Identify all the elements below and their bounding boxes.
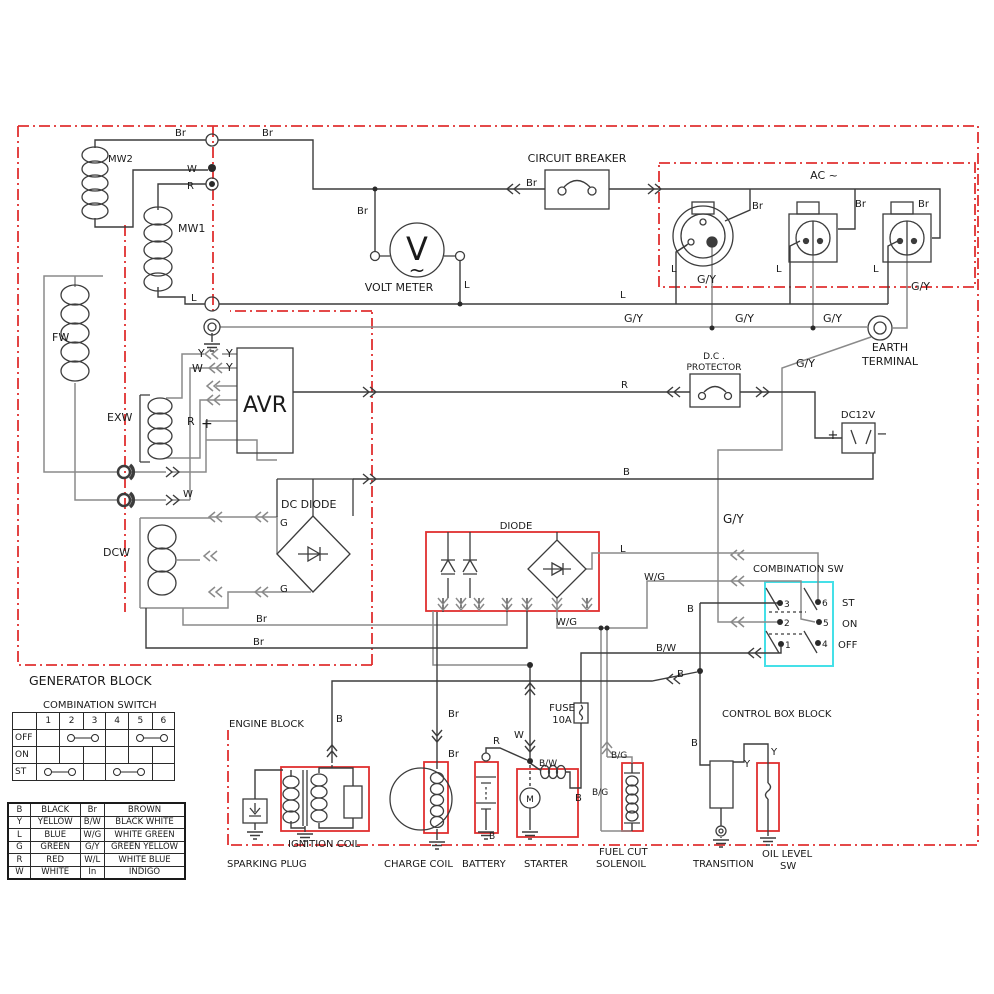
label-charge-coil: CHARGE COIL — [384, 859, 453, 870]
label-r: R — [621, 380, 628, 391]
label-b: B — [677, 669, 684, 680]
label-transition: TRANSITION — [692, 859, 754, 870]
label-combination-sw: COMBINATION SW — [753, 564, 844, 575]
label-l: L — [776, 264, 782, 275]
label-solenoil: SOLENOIL — [596, 859, 646, 870]
wire-color-legend: BBLACKBrBROWN YYELLOWB/WBLACK WHITE LBLU… — [7, 802, 186, 880]
label-b-w: B/W — [539, 759, 557, 769]
row-label-on: ON — [13, 747, 37, 764]
label-g: G — [280, 584, 288, 595]
label-g-y: G/Y — [911, 280, 930, 293]
label-10a: 10A — [552, 715, 572, 726]
junction-dots — [208, 164, 822, 764]
connector-gy-outer — [204, 319, 220, 335]
connector-br — [206, 134, 218, 146]
label-br: Br — [256, 614, 268, 625]
label-br: Br — [262, 128, 274, 139]
st-connection-4-5 — [106, 764, 153, 781]
label-r: R — [187, 181, 194, 192]
label-off: OFF — [838, 640, 858, 651]
label-b-g: B/G — [592, 788, 608, 798]
label-: ~ — [409, 258, 426, 282]
label-r: R — [493, 736, 500, 747]
label-ignition-coil: IGNITION COIL — [288, 839, 361, 850]
dc-protector — [690, 374, 740, 407]
label-br: Br — [855, 199, 867, 210]
ac-outlet-3 — [883, 202, 931, 262]
label-terminal: TERMINAL — [861, 355, 919, 368]
label-w: W — [192, 362, 203, 375]
label-b: B — [575, 793, 582, 804]
label-5: 5 — [823, 619, 829, 629]
label-b: B — [691, 738, 698, 749]
label-control-box-block: CONTROL BOX BLOCK — [722, 709, 832, 720]
label-br: Br — [448, 709, 460, 720]
label-l: L — [873, 264, 879, 275]
label-br: Br — [448, 749, 460, 760]
label-dc-diode: DC DIODE — [281, 498, 336, 511]
table-row-st: ST — [13, 764, 175, 781]
label-dcw: DCW — [103, 546, 130, 559]
col-blank — [13, 713, 37, 730]
off-connection-5-6 — [129, 730, 175, 747]
label-oil-level: OIL LEVEL — [762, 849, 813, 860]
ground-symbols — [204, 344, 776, 849]
label-l: L — [671, 264, 677, 275]
label-ac: AC ~ — [810, 169, 838, 182]
label-3: 3 — [784, 600, 790, 610]
label-d-c: D.C . — [703, 352, 725, 362]
exw-coil — [140, 395, 172, 462]
label-r: R — [187, 415, 195, 428]
label-b: B — [687, 604, 694, 615]
col-1: 1 — [37, 713, 60, 730]
col-6: 6 — [152, 713, 174, 730]
label-diode: DIODE — [500, 521, 533, 532]
label-w-g: W/G — [556, 617, 577, 628]
label-4: 4 — [822, 640, 828, 650]
label-: − — [877, 427, 888, 442]
st-connection-1-2 — [37, 764, 84, 781]
charge-coil — [390, 768, 452, 830]
label-g-y: G/Y — [697, 273, 716, 286]
label-st: ST — [842, 598, 855, 609]
row-label-st: ST — [13, 764, 37, 781]
label-y: Y — [225, 347, 233, 360]
label-2: 2 — [784, 619, 790, 629]
label-br: Br — [175, 128, 187, 139]
mw1-coil — [144, 207, 172, 291]
label-battery: BATTERY — [462, 859, 507, 870]
label-sparking-plug: SPARKING PLUG — [227, 859, 307, 870]
label-: + — [201, 416, 213, 432]
table-header-row: 1 2 3 4 5 6 — [13, 713, 175, 730]
label-l: L — [620, 290, 626, 301]
label-b: B — [623, 467, 630, 478]
col-2: 2 — [60, 713, 84, 730]
combination-switch-table: 1 2 3 4 5 6 OFF ON ST — [12, 712, 175, 781]
label-br: Br — [357, 206, 369, 217]
label-on: ON — [842, 619, 857, 630]
label-l: L — [620, 544, 626, 555]
label-b: B — [489, 832, 495, 842]
col-4: 4 — [106, 713, 129, 730]
label-fuse: FUSE — [549, 703, 575, 714]
label-earth: EARTH — [872, 341, 908, 354]
label-6: 6 — [822, 599, 828, 609]
ignition-coil — [283, 770, 362, 826]
ac-outlet-1 — [673, 202, 733, 266]
off-connection-2-3 — [60, 730, 106, 747]
label-y: Y — [225, 361, 233, 374]
label-l: L — [191, 293, 197, 304]
label-engine-block: ENGINE BLOCK — [229, 719, 304, 730]
col-3: 3 — [83, 713, 105, 730]
dc-diode — [277, 479, 353, 592]
label-dc12v: DC12V — [841, 410, 875, 421]
label-y: Y — [197, 347, 205, 360]
table-row-off: OFF — [13, 730, 175, 747]
label-br: Br — [526, 178, 538, 189]
label-generator-block: GENERATOR BLOCK — [29, 673, 152, 688]
dcw-coil — [148, 525, 176, 595]
mw2-coil — [82, 147, 108, 219]
label-g-y: G/Y — [723, 512, 744, 526]
col-5: 5 — [129, 713, 153, 730]
label-w: W — [514, 730, 524, 741]
label-b-g: B/G — [611, 751, 627, 761]
fuse — [574, 703, 588, 723]
label-br: Br — [918, 199, 930, 210]
label-w-g: W/G — [644, 572, 665, 583]
label-exw: EXW — [107, 411, 132, 424]
label-m: M — [526, 795, 534, 805]
dc12v-socket — [842, 423, 875, 453]
label-y: Y — [770, 747, 778, 758]
label-starter: STARTER — [524, 859, 568, 870]
label-w: W — [183, 489, 193, 500]
label-mw2: MW2 — [108, 154, 133, 165]
label-combination-switch: COMBINATION SWITCH — [43, 700, 157, 711]
label-sw: SW — [780, 861, 796, 872]
label-fuel-cut: FUEL CUT — [599, 847, 648, 858]
table-row-on: ON — [13, 747, 175, 764]
ac-outlet-2 — [789, 202, 837, 262]
label-g-y: G/Y — [823, 312, 842, 325]
label-g-y: G/Y — [735, 312, 754, 325]
diode-block — [441, 532, 587, 612]
label-y: Y — [743, 759, 751, 770]
label-fw: FW — [52, 331, 69, 344]
label-br: Br — [253, 637, 265, 648]
label-protector: PROTECTOR — [686, 363, 741, 373]
label-: + — [828, 428, 839, 443]
components — [61, 134, 931, 836]
connector-gy-inner — [208, 323, 216, 331]
label-br: Br — [752, 201, 764, 212]
fuel-cut-solenoid — [624, 773, 640, 823]
earth-terminal — [868, 316, 892, 340]
sparking-plug — [243, 799, 267, 823]
label-mw1: MW1 — [178, 222, 205, 235]
row-label-off: OFF — [13, 730, 37, 747]
label-g-y: G/Y — [796, 357, 815, 370]
label-l: L — [464, 280, 470, 291]
connector-l — [205, 297, 219, 311]
label-b: B — [336, 714, 343, 725]
label-g: G — [280, 518, 288, 529]
label-volt-meter: VOLT METER — [365, 281, 434, 294]
label-b-w: B/W — [656, 643, 676, 654]
wiring-diagram-page: MW2BrWRBrMW1LFWEXWDCWCIRCUIT BREAKERBrBr… — [0, 0, 994, 994]
label-g-y: G/Y — [624, 312, 643, 325]
label-circuit-breaker: CIRCUIT BREAKER — [528, 152, 627, 165]
label-w: W — [187, 164, 197, 175]
circuit-breaker — [545, 170, 609, 209]
label-1: 1 — [785, 641, 791, 651]
label-avr: AVR — [243, 393, 287, 418]
